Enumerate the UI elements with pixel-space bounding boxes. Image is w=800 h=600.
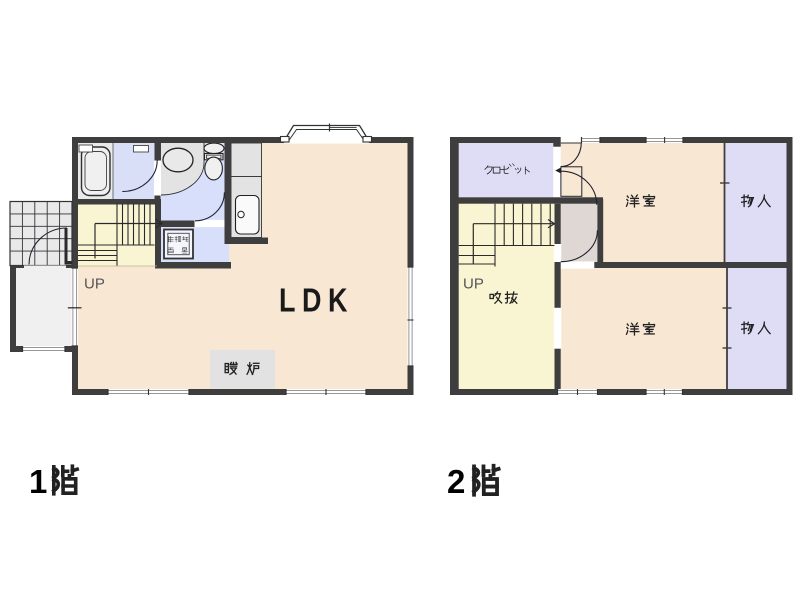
svg-text:2: 2 bbox=[447, 463, 465, 500]
svg-text:UP: UP bbox=[463, 276, 484, 293]
svg-text:1: 1 bbox=[29, 463, 47, 500]
svg-text:LDK: LDK bbox=[279, 282, 354, 319]
svg-text:UP: UP bbox=[84, 276, 105, 293]
